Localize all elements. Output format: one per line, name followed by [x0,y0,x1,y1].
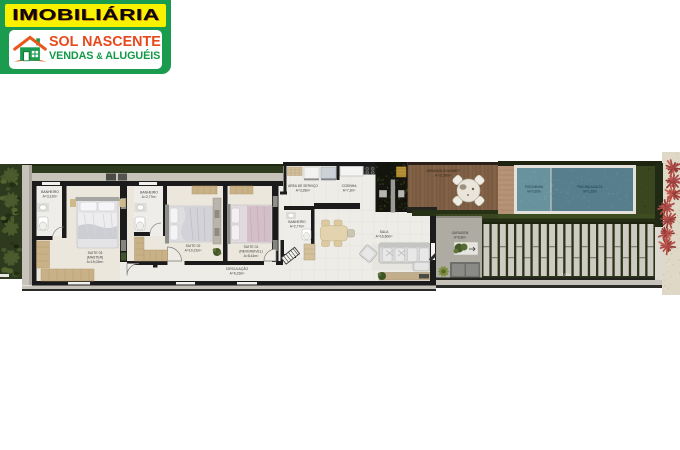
svg-text:(MASTER): (MASTER) [87,256,103,260]
svg-text:SUITE 01: SUITE 01 [244,245,259,249]
svg-text:7,00m: 7,00m [561,273,571,277]
svg-text:A=11,96m²: A=11,96m² [435,174,452,178]
svg-text:AREA DE SERVIÇO: AREA DE SERVIÇO [288,184,318,188]
svg-text:A=8,8m²: A=8,8m² [454,236,467,240]
svg-text:CIRCULAÇÃO: CIRCULAÇÃO [226,266,249,271]
svg-text:A=10,21m²: A=10,21m² [185,249,203,253]
svg-text:SALA: SALA [380,230,389,234]
svg-text:A=15,02m²: A=15,02m² [87,260,105,264]
svg-text:GARAGEM: GARAGEM [452,231,469,235]
svg-text:BANHEIRO: BANHEIRO [41,190,59,194]
svg-text:A=2,77m²: A=2,77m² [142,195,158,199]
svg-text:M=1,35m: M=1,35m [583,189,597,193]
svg-text:COZINHA: COZINHA [342,184,358,188]
svg-text:A=16,60m²: A=16,60m² [376,235,394,239]
svg-text:SUITE 03: SUITE 03 [88,251,103,255]
svg-text:A=7,2m²: A=7,2m² [343,189,356,193]
svg-text:(REVERSIVEL): (REVERSIVEL) [239,250,263,254]
svg-text:SUITE 02: SUITE 02 [186,244,201,248]
svg-text:A=6,23m²: A=6,23m² [230,272,246,276]
svg-text:VARANDA GOURMET: VARANDA GOURMET [426,169,459,173]
svg-text:PISCININHA: PISCININHA [525,185,544,189]
svg-text:A=2,77m²: A=2,77m² [290,225,305,229]
svg-text:A=3,12m²: A=3,12m² [43,195,59,199]
svg-text:A=3,28m²: A=3,28m² [296,189,311,193]
svg-text:A=8,41m²: A=8,41m² [244,254,260,258]
svg-text:M=0,35m: M=0,35m [527,189,541,193]
svg-text:BANHEIRO: BANHEIRO [288,220,306,224]
svg-text:BANHEIRO: BANHEIRO [140,191,158,195]
svg-text:PISCINA ADULTA: PISCINA ADULTA [577,185,603,189]
